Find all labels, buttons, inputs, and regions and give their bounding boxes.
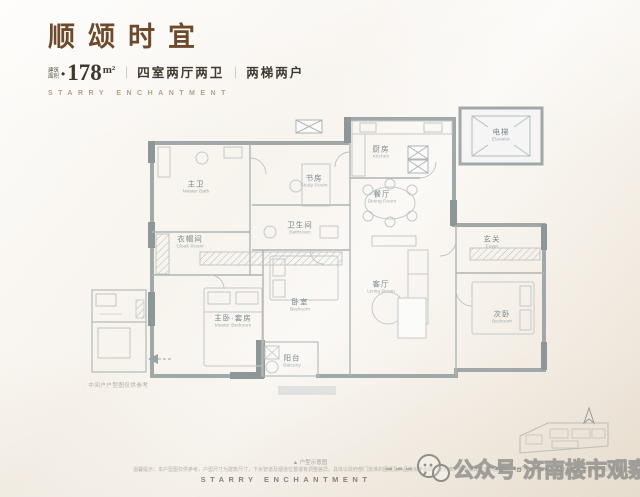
room-name-en: Living Room [367,289,395,295]
room-name-cn: 电梯 [491,129,511,137]
area-value: 178 [67,62,102,84]
bullet-separator: • [61,67,65,81]
room-name-cn: 次卧 [491,311,513,319]
room-name-en: Foyer [484,244,499,250]
room-name-en: Bathroom [289,230,312,236]
room-label-study: 书房 Study Room [299,175,329,190]
room-name-cn: 卫生间 [287,222,313,230]
watermark-dash [386,468,412,470]
room-label-second-bedroom: 次卧 Bedroom [491,311,513,326]
plan-caption: ▲ 户型示意图 [250,458,370,466]
room-label-bedroom: 卧室 Bedroom [289,299,311,314]
room-label-cloak: 衣帽间 Cloak Room [175,236,205,251]
watermark: 公众号·济南楼市观察 [386,452,640,486]
header: 顺颂时宜 建筑 面积 • 178 m² ｜ 四室两厅两卫 ｜ 两梯两户 STAR… [48,22,304,97]
room-label-balcony: 阳台 Balcony [282,355,302,370]
room-label-bathroom: 卫生间 Bathroom [287,222,313,237]
subtitle-en: STARRY ENCHANTMENT [48,90,304,97]
divider: ｜ [120,64,132,81]
area-label-line2: 面积 [48,74,59,80]
room-name-cn: 厨房 [372,146,390,154]
room-label-foyer: 玄关 Foyer [484,236,501,251]
elevator-spec: 两梯两户 [246,62,304,81]
room-name-en: Master Bedroom [215,323,252,329]
room-label-elevator: 电梯 Elevator [491,129,511,144]
page: 顺颂时宜 建筑 面积 • 178 m² ｜ 四室两厅两卫 ｜ 两梯两户 STAR… [0,0,640,497]
room-name-en: Balcony [283,363,301,369]
room-label-master-bedroom: 主卧·套房 Master Bedroom [213,315,254,330]
area-unit: m² [103,64,115,76]
room-name-en: Cloak Room [176,244,203,250]
room-label-living: 客厅 Living Room [366,281,397,296]
layout-spec: 四室两厅两卫 [137,62,224,81]
room-name-en: Bedroom [290,307,310,313]
room-name-cn: 书房 [299,175,329,183]
area-label: 建筑 面积 [48,68,59,80]
room-name-en: Bedroom [492,319,512,325]
room-name-en: Dining Room [368,199,397,205]
room-name-cn: 玄关 [484,236,501,244]
brand-footer-en: STARRY ENCHANTMENT [188,475,384,484]
room-name-cn: 客厅 [366,281,397,289]
chat-bubbles-icon [415,452,453,486]
room-name-cn: 主卫 [181,181,211,189]
room-name-cn: 主卧·套房 [213,315,254,323]
room-label-kitchen: 厨房 Kitchen [372,146,390,161]
room-name-cn: 卧室 [289,299,311,307]
watermark-text: 公众号·济南楼市观察 [453,454,640,484]
room-name-en: Elevator [492,137,510,143]
room-name-cn: 衣帽间 [175,236,205,244]
room-label-master-bath: 主卫 Master Bath [181,181,211,196]
room-name-en: Master Bath [183,189,210,195]
page-title: 顺颂时宜 [48,22,304,52]
room-label-dining: 餐厅 Dining Room [366,191,398,206]
mid-unit-note: · 中间户户型图仅供参考 [84,381,148,389]
compass-icon [584,408,594,423]
room-name-en: Kitchen [373,154,390,160]
room-name-en: Study Room [300,183,327,189]
room-name-cn: 阳台 [282,355,302,363]
area-spec-line: 建筑 面积 • 178 m² ｜ 四室两厅两卫 ｜ 两梯两户 [48,62,304,84]
room-name-cn: 餐厅 [366,191,398,199]
divider: ｜ [229,64,241,81]
